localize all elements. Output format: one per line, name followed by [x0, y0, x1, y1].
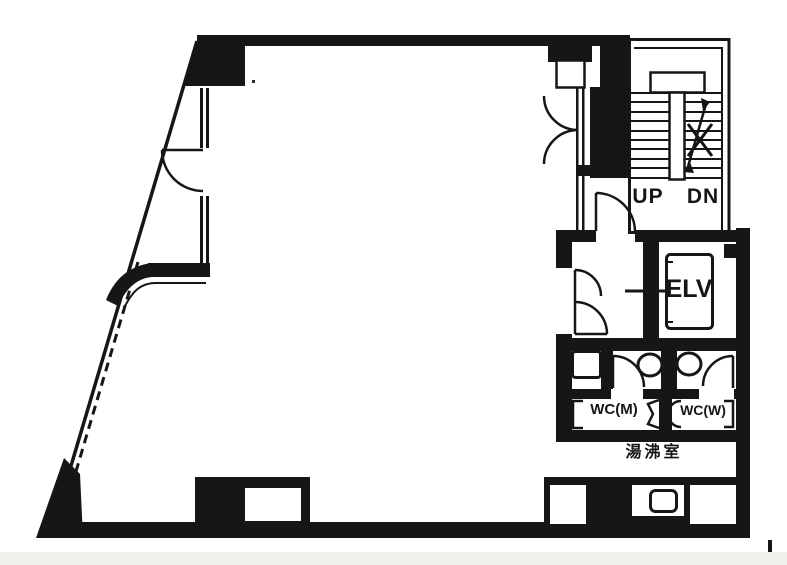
entry-header-block [548, 38, 592, 62]
door-swing-arc [162, 150, 203, 191]
hall-door-arc-small [575, 270, 601, 296]
wc-stall-door-arc [703, 356, 733, 386]
stair-upper-landing [651, 73, 705, 93]
top-left-inner-wall [106, 88, 210, 308]
top-left-corner-column [184, 35, 245, 86]
wc-men-label: WC(M) [570, 402, 658, 417]
inner-wall-line [206, 88, 209, 148]
entry-recess-niche [557, 61, 585, 88]
toilet-icon [677, 353, 701, 375]
elevator-label: ELV [664, 277, 714, 302]
floor-plan-sheet: UP DN ELV WC(M) WC(W) 湯沸室 [0, 0, 787, 565]
stair-side-wall-black [590, 87, 630, 178]
elevator-corner-column [724, 244, 738, 258]
double-door-arc-top [544, 96, 578, 130]
double-door-arc-bottom [544, 130, 578, 164]
washbasin-icon [573, 352, 601, 378]
kitchenette-label: 湯沸室 [608, 445, 700, 461]
bottom-wall [50, 522, 750, 538]
inner-wall-line [206, 196, 209, 268]
wc-women-label: WC(W) [672, 403, 734, 417]
kitchenette-cabinet-left [550, 485, 586, 524]
stair-top-left-column [600, 35, 630, 87]
kitchenette-cabinet-right [690, 485, 736, 524]
core-left-wall-door-opening [556, 268, 572, 334]
stairs-down-label: DN [684, 186, 722, 207]
stairs-up-label: UP [630, 186, 666, 207]
inner-wall-curve-line [124, 283, 206, 308]
bottom-duct-notch [245, 488, 301, 521]
wc-top-wall [556, 338, 750, 351]
inner-wall-bar [148, 263, 210, 277]
inner-wall-line [200, 88, 203, 148]
wc-mid-wall-opening [611, 389, 643, 399]
hall-door-arc-large [575, 302, 607, 334]
scan-speck [252, 80, 255, 83]
stair-newel-wall [670, 93, 685, 180]
vestibule-wall-line [582, 88, 585, 232]
elevator-hall-door [575, 270, 607, 334]
scan-edge-shadow [0, 552, 787, 565]
wc-divider-wall-b [661, 351, 677, 389]
wc-divider-wall-a [601, 351, 613, 389]
stair-treads-left [631, 93, 669, 178]
inner-wall-line [200, 196, 203, 268]
bottom-fixtures [195, 477, 750, 524]
wc-bottom-wall [556, 430, 750, 442]
vestibule-wall-line [576, 88, 579, 232]
wc-mid-wall-opening [699, 389, 734, 399]
diagonal-window-line [61, 262, 138, 522]
